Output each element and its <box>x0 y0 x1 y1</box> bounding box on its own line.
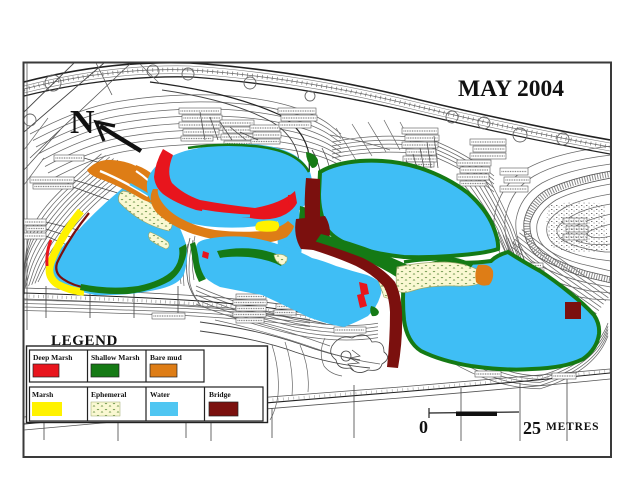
svg-text:Bare mud: Bare mud <box>150 353 183 362</box>
svg-text:25: 25 <box>523 418 541 438</box>
svg-text:Water: Water <box>150 390 171 399</box>
svg-text:Marsh: Marsh <box>32 390 54 399</box>
svg-text:N: N <box>70 104 95 141</box>
svg-text:METRES: METRES <box>546 421 599 433</box>
svg-text:Shallow Marsh: Shallow Marsh <box>91 353 140 362</box>
svg-text:MAY 2004: MAY 2004 <box>458 76 564 102</box>
svg-text:0: 0 <box>419 417 428 437</box>
svg-text:LEGEND: LEGEND <box>51 333 118 349</box>
svg-text:Deep Marsh: Deep Marsh <box>33 353 73 362</box>
svg-text:Bridge: Bridge <box>209 390 231 399</box>
svg-text:Ephemeral: Ephemeral <box>91 390 126 399</box>
